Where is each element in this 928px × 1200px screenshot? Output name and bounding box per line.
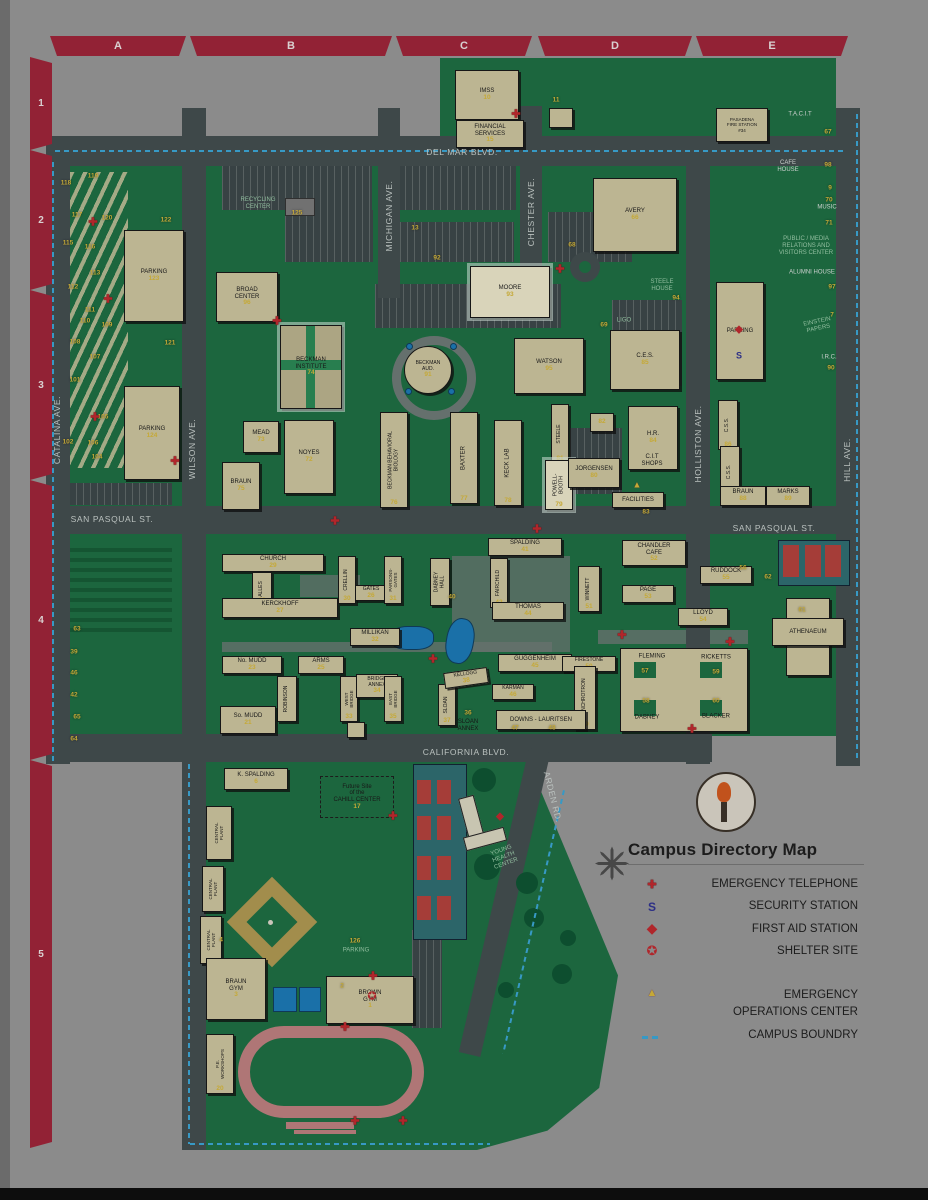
building-number: 96	[243, 300, 250, 307]
building-number: 72	[305, 457, 312, 464]
building-number: 74	[307, 370, 314, 377]
running-track	[238, 1026, 424, 1118]
building-number-92: 92	[433, 255, 440, 262]
legend-item: CAMPUS BOUNDRY	[642, 1026, 858, 1044]
legend-item: ✪ SHELTER SITE	[642, 943, 858, 960]
building-millikan: MILLIKAN32	[350, 628, 400, 646]
legend-item: ▲ EMERGENCY OPERATIONS CENTER	[642, 987, 858, 1020]
label-ricketts: RICKETTS	[701, 654, 731, 661]
building-name: DABNEY HALL	[434, 572, 445, 593]
building-number-39: 39	[70, 649, 77, 656]
grid-col-A: A	[50, 36, 186, 56]
building-avery: AVERY66	[593, 178, 677, 252]
building-number: 52	[650, 556, 657, 563]
building-east-bridge: EAST BRIDGE35	[384, 676, 402, 722]
building-number: 1	[368, 1003, 372, 1010]
caltech-seal	[696, 772, 756, 832]
label-c-i-t-shops: C.I.T SHOPS	[641, 454, 662, 468]
street-label-hill-ave: HILL AVE.	[842, 438, 852, 482]
tennis-court	[417, 896, 431, 920]
building-number-116: 116	[85, 244, 96, 251]
parking-lot	[412, 930, 442, 1028]
swimming-pool	[299, 987, 321, 1012]
grid-col-D: D	[538, 36, 692, 56]
label-parking: PARKING	[343, 947, 370, 954]
tree	[516, 872, 538, 894]
emergency-telephone-icon: ✚	[90, 413, 99, 424]
label-recycling-center: RECYCLING CENTER	[240, 197, 275, 211]
emergency-telephone-icon: ✚	[511, 110, 520, 121]
building-church: CHURCH29	[222, 554, 324, 572]
parking-lot	[285, 210, 373, 262]
shelter-site-icon: ✪	[367, 992, 376, 1003]
building-number-94: 94	[672, 295, 679, 302]
building-number: 123	[149, 276, 160, 283]
building-number: 6	[254, 779, 258, 786]
street-label-michigan-ave: MICHIGAN AVE.	[384, 181, 394, 252]
label-t-a-c-i-t: T.A.C.I.T	[788, 111, 811, 118]
legend-title: Campus Directory Map	[628, 840, 817, 860]
legend-item-label: EMERGENCY OPERATIONS CENTER	[662, 987, 858, 1020]
building-number-64: 64	[70, 736, 77, 743]
street-label-wilson-ave: WILSON AVE.	[187, 419, 197, 480]
building-number-59: 59	[712, 669, 719, 676]
roundabout-center	[579, 261, 591, 273]
tree	[498, 982, 514, 998]
building-imss: IMSS10	[455, 70, 519, 120]
building-sloan: SLOAN37	[438, 684, 456, 726]
left-margin-strip	[0, 0, 10, 1200]
tree	[472, 768, 496, 792]
legend-item-label: SECURITY STATION	[662, 898, 858, 915]
building-number: 41	[521, 547, 528, 554]
building-number: 78	[504, 498, 511, 505]
building-braun: BRAUN88	[720, 486, 766, 506]
building-number: 46	[509, 692, 516, 699]
first-aid-station-icon: ◆	[496, 812, 504, 823]
street-label-del-mar-blvd: DEL MAR BLVD.	[426, 147, 498, 157]
building-number: 23	[248, 665, 255, 672]
label-blacker: BLACKER	[702, 713, 730, 720]
street-label-san-pasqual-st: SAN PASQUAL ST.	[733, 523, 816, 533]
tennis-court	[805, 545, 821, 577]
building-name: FAIRCHILD	[496, 570, 502, 596]
building-baxter: BAXTER77	[450, 412, 478, 504]
building-number-60: 60	[712, 698, 719, 705]
legend-item-label: EMERGENCY TELEPHONE	[662, 876, 858, 893]
pitchers-mound	[268, 920, 273, 925]
street-label-san-pasqual-st: SAN PASQUAL ST.	[71, 514, 154, 524]
building-number: 73	[257, 437, 264, 444]
emergency-telephone-icon: ✚	[103, 295, 112, 306]
road-wilson	[182, 136, 206, 1150]
fountain	[450, 343, 457, 350]
building-number-56: 56	[739, 565, 746, 572]
building-number-83: 83	[642, 509, 649, 516]
building-number: 124	[147, 433, 158, 440]
building-number-42: 42	[70, 692, 77, 699]
label-ligo: LIGO	[617, 317, 631, 324]
building-number: 95	[545, 366, 552, 373]
building-name: EAST BRIDGE	[388, 690, 398, 707]
building-name: ROBINSON	[284, 686, 290, 713]
emergency-telephone-icon: ✚	[388, 812, 397, 823]
grid-col-C: C	[396, 36, 532, 56]
legend-item-label: FIRST AID STATION	[662, 921, 858, 938]
tennis-court	[437, 896, 451, 920]
tennis-court	[825, 545, 841, 577]
building-number-7: 7	[830, 312, 834, 319]
grid-row-4: 4	[30, 480, 52, 760]
emergency-telephone-icon: ✚	[725, 638, 734, 649]
building-number-112: 112	[68, 284, 79, 291]
building-central-plant: CENTRAL PLANT	[202, 866, 224, 912]
building-number-11: 11	[553, 97, 560, 104]
tennis-court	[417, 856, 431, 880]
building-number-104: 104	[92, 454, 103, 461]
building-thomas: THOMAS44	[492, 602, 564, 620]
building-pasadena-fire-station-34: PASADENA FIRE STATION #34	[716, 108, 768, 142]
building-watson: WATSON95	[514, 338, 584, 394]
legend-item: ✚ EMERGENCY TELEPHONE	[642, 876, 858, 893]
building-name: BROAD CENTER	[235, 287, 260, 300]
grid-row-3: 3	[30, 290, 52, 480]
building-number: 33	[345, 714, 352, 721]
building-braun-gym: BRAUN GYM3	[206, 958, 266, 1020]
tennis-court	[437, 856, 451, 880]
building-number: 26	[367, 593, 374, 600]
building-number-110: 110	[80, 318, 91, 325]
building-keck-lab: KECK LAB78	[494, 420, 522, 506]
building-name: DOWNS - LAURITSEN	[510, 717, 572, 724]
building-future-site-of-the-cahill-center: Future Site of the CAHILL CENTER17	[320, 776, 394, 818]
emergency-telephone-icon: ✚	[617, 631, 626, 642]
compass-rose-icon	[594, 846, 630, 882]
street-label-holliston-ave: HOLLISTON AVE.	[693, 405, 703, 482]
campus-boundary-line	[856, 114, 858, 758]
building-name: POWELL- BOOTH	[553, 474, 564, 497]
building-name: CENTRAL PLANT	[208, 878, 218, 899]
building-number-67: 67	[824, 129, 831, 136]
fountain	[448, 388, 455, 395]
building-page: PAGE53	[622, 585, 674, 603]
building-winnett: WINNETT51	[578, 566, 600, 612]
building-name: ATHENAEUM	[789, 629, 826, 636]
building-number-57: 57	[641, 668, 648, 675]
building-beckman-aud: BECKMAN AUD.91	[404, 346, 452, 394]
tennis-court	[437, 780, 451, 804]
building-name: KECK LAB	[505, 448, 512, 477]
building-number: 38	[462, 677, 470, 684]
building-number: 25	[317, 665, 324, 672]
road-wilson-stub	[182, 108, 206, 138]
building-name: WINNETT	[586, 578, 592, 601]
building-broad-center: BROAD CENTER96	[216, 272, 278, 322]
first-aid-station-icon: ◆	[642, 920, 662, 937]
campus-boundary-line	[190, 1143, 490, 1145]
building-name: BECKMAN BEHAVIORAL BIOLOGY	[388, 431, 399, 489]
label-alumni-house: ALUMNI HOUSE	[789, 269, 835, 276]
building-number: 80	[590, 473, 597, 480]
building-num-82: 82	[590, 413, 614, 432]
grid-col-E: E	[696, 36, 848, 56]
building-number-63: 63	[73, 626, 80, 633]
emergency-telephone-icon: ✚	[532, 525, 541, 536]
building-facilities: FACILITIES	[612, 492, 664, 508]
building-number-102: 102	[63, 439, 74, 446]
street-label-california-blvd: CALIFORNIA BLVD.	[423, 747, 509, 757]
building-number-113: 113	[90, 270, 101, 277]
building-number-61: 61	[798, 607, 805, 614]
building-spalding: SPALDING41	[488, 538, 562, 556]
building-number-126: 126	[350, 938, 361, 945]
track-strip	[294, 1130, 356, 1134]
emergency-telephone-icon: ✚	[428, 655, 437, 666]
building-name: C.S.S.	[727, 465, 733, 479]
building-name: CENTRAL PLANT	[214, 822, 224, 843]
building-number-46: 46	[70, 670, 77, 677]
building-chandler-cafe: CHANDLER CAFE52	[622, 540, 686, 566]
building-mead: MEAD73	[243, 421, 279, 453]
building-name: ALLES	[259, 581, 265, 597]
building-name: Future Site of the CAHILL CENTER	[333, 784, 380, 804]
building-number-58: 58	[642, 698, 649, 705]
street-label-catalina-ave: CATALINA AVE.	[52, 396, 62, 464]
building-number-40: 40	[448, 594, 455, 601]
street-label-chester-ave: CHESTER AVE.	[526, 178, 536, 246]
building-number-106: 106	[88, 440, 99, 447]
building-number-68: 68	[568, 242, 575, 249]
building-number: 10	[483, 95, 490, 102]
building-number: 93	[506, 292, 513, 299]
building-name: C.S.S.	[725, 418, 731, 432]
building-name: BRAUN GYM	[225, 979, 246, 992]
building-number-115: 115	[63, 240, 74, 247]
building-number-119: 119	[88, 173, 99, 180]
building-number: 20	[216, 1086, 223, 1093]
building-number-118: 118	[61, 180, 72, 187]
building-name: BAXTER	[461, 446, 468, 470]
tennis-court	[417, 780, 431, 804]
building-robinson: ROBINSON	[277, 676, 297, 722]
building-number-13: 13	[411, 225, 418, 232]
building-name: PARSONS- GATES	[388, 568, 398, 591]
building-so-mudd: So. MUDD21	[220, 706, 276, 734]
label-i-r-c: I.R.C.	[821, 354, 836, 361]
building-lloyd: LLOYD54	[678, 608, 728, 626]
tree	[552, 964, 572, 984]
building-number: 54	[699, 617, 706, 624]
fountain	[406, 343, 413, 350]
building-beckman-institute: BECKMAN INSTITUTE74	[280, 325, 342, 409]
label-sloan-annex: SLOAN ANNEX	[458, 719, 479, 733]
legend-item-label: SHELTER SITE	[662, 943, 858, 960]
building-number-65: 65	[73, 714, 80, 721]
swimming-pool	[273, 987, 297, 1012]
building-noyes: NOYES72	[284, 420, 334, 494]
label-fleming: FLEMING	[639, 653, 666, 660]
building-number: 31	[389, 596, 396, 603]
legend-title-rule	[628, 864, 864, 865]
building-name: BECKMAN INSTITUTE	[296, 357, 327, 370]
emergency-telephone-icon: ✚	[272, 317, 281, 328]
building-jorgensen: JORGENSEN80	[568, 458, 620, 488]
legend-item: S SECURITY STATION	[642, 898, 858, 915]
building-name: SLOAN	[444, 697, 450, 714]
label-music: MUSIC	[817, 204, 836, 211]
building-number: 91	[424, 372, 431, 379]
building-athenaeum: ATHENAEUM	[772, 618, 844, 646]
bottom-border-bar	[0, 1188, 928, 1200]
tree	[560, 930, 576, 946]
emergency-operations-center-icon: ▲	[642, 987, 662, 999]
track-strip	[286, 1122, 354, 1129]
building-number-109: 109	[102, 322, 113, 329]
emergency-telephone-icon: ✚	[687, 725, 696, 736]
building-number: 55	[722, 575, 729, 582]
building-gates: GATES26	[355, 585, 387, 601]
building-number: 37	[443, 718, 450, 725]
building-num-	[347, 722, 365, 738]
building-name: PASADENA FIRE STATION #34	[727, 117, 757, 132]
parking-lot	[398, 166, 516, 210]
building-number-108: 108	[70, 339, 81, 346]
building-name: FINANCIAL SERVICES	[474, 124, 505, 137]
building-number-71: 71	[825, 220, 832, 227]
building-number-9: 9	[828, 185, 832, 192]
building-number: 84	[649, 438, 656, 445]
building-name: P.E. WORKSHOPS	[215, 1049, 225, 1079]
building-number: 3	[234, 992, 238, 999]
building-parking: PARKING123	[124, 230, 184, 322]
label-cafe-house: CAFE HOUSE	[777, 160, 798, 174]
emergency-telephone-icon: ✚	[350, 1117, 359, 1128]
building-parsons-gates: PARSONS- GATES31	[384, 556, 402, 604]
tennis-court	[783, 545, 799, 577]
building-downs-lauritsen: DOWNS - LAURITSEN	[496, 710, 586, 730]
building-fairchild: FAIRCHILD42	[490, 558, 508, 608]
security-station-icon: S	[642, 900, 662, 914]
building-arms: ARMS25	[298, 656, 344, 674]
building-name: STEELE	[557, 424, 563, 443]
building-name: CRELLIN	[344, 569, 350, 590]
building-number: 29	[269, 563, 276, 570]
building-number: 15	[486, 137, 493, 144]
building-karman: KARMAN46	[492, 684, 534, 700]
building-dabney-hall: DABNEY HALL	[430, 558, 450, 606]
grid-row-2: 2	[30, 150, 52, 290]
building-k-spalding: K. SPALDING6	[224, 768, 288, 790]
building-number: 17	[353, 804, 360, 811]
building-number-98: 98	[824, 162, 831, 169]
emergency-telephone-icon: ✚	[368, 972, 377, 983]
building-moore: MOORE93	[470, 266, 550, 318]
building-steele: STEELE81	[551, 404, 569, 464]
grid-row-1: 1	[30, 57, 52, 150]
garden-hedges	[64, 544, 172, 632]
building-financial-services: FINANCIAL SERVICES15	[456, 120, 524, 148]
building-crellin: CRELLIN30	[338, 556, 356, 604]
building-number: 79	[555, 502, 562, 509]
building-number-107: 107	[90, 354, 101, 361]
building-number-47: 47	[511, 725, 518, 732]
building-number: 53	[644, 594, 651, 601]
building-c-e-s: C.E.S.85	[610, 330, 680, 390]
building-number: 77	[460, 496, 467, 503]
building-no-mudd: No. MUDD23	[222, 656, 282, 674]
building-number-69: 69	[600, 322, 607, 329]
building-guggenheim: GUGGENHEIM45	[498, 654, 572, 672]
building-number-122: 122	[161, 217, 172, 224]
building-number-62: 62	[764, 574, 771, 581]
emergency-telephone-icon: ✚	[330, 517, 339, 528]
emergency-telephone-icon: ✚	[398, 1117, 407, 1128]
building-number: 88	[739, 496, 746, 503]
building-number: 32	[371, 637, 378, 644]
building-number-90: 90	[827, 365, 834, 372]
building-number-101: 101	[70, 377, 81, 384]
label-dabney: DABNEY	[635, 714, 660, 721]
emergency-operations-center-icon: ▲	[633, 481, 642, 490]
legend-item: ◆ FIRST AID STATION	[642, 920, 858, 937]
building-number: 89	[784, 496, 791, 503]
tennis-court	[437, 816, 451, 840]
building-kerckhoff: KERCKHOFF27	[222, 598, 338, 618]
building-number: 27	[276, 608, 283, 615]
building-number: 44	[524, 611, 531, 618]
building-number: 35	[389, 714, 396, 721]
emergency-telephone-icon: ✚	[555, 265, 564, 276]
building-number: 45	[531, 663, 538, 670]
legend-item-label: CAMPUS BOUNDRY	[662, 1027, 858, 1044]
emergency-telephone-icon: ✚	[170, 457, 179, 468]
building-beckman-behavioral-biology: BECKMAN BEHAVIORAL BIOLOGY76	[380, 412, 408, 508]
building-number-97: 97	[828, 284, 835, 291]
building-number-4: 4	[219, 937, 223, 944]
building-number: 82	[598, 419, 605, 426]
fountain	[405, 388, 412, 395]
campus-directory-map: Campus Directory Map ✚ EMERGENCY TELEPHO…	[0, 0, 928, 1200]
building-number: 34	[373, 688, 380, 695]
building-number-121: 121	[165, 340, 176, 347]
building-marks: MARKS89	[766, 486, 810, 506]
building-number-120: 120	[102, 215, 113, 222]
building-number-117: 117	[72, 212, 83, 219]
building-number: 30	[343, 596, 350, 603]
building-central-plant: CENTRAL PLANT	[206, 806, 232, 860]
building-num-	[549, 108, 573, 128]
emergency-telephone-icon: ✚	[88, 218, 97, 229]
emergency-telephone-icon: ✚	[642, 878, 662, 891]
parking-lot	[62, 483, 172, 505]
building-number-48: 48	[548, 725, 555, 732]
building-number-70: 70	[825, 197, 832, 204]
grid-row-5: 5	[30, 760, 52, 1148]
building-name: FACILITIES	[622, 497, 654, 504]
building-number: 51	[585, 604, 592, 611]
building-number-36: 36	[464, 710, 471, 717]
label-steele-house: STEELE HOUSE	[650, 279, 673, 293]
first-aid-station-icon: ◆	[735, 325, 743, 336]
building-number-2: 2	[340, 983, 344, 990]
campus-boundary-line	[188, 764, 190, 1144]
label-public-media-relations-and-visitors-center: PUBLIC / MEDIA RELATIONS AND VISITORS CE…	[779, 236, 833, 258]
building-number: 85	[641, 360, 648, 367]
security-station-icon: S	[736, 352, 742, 361]
building-number: 75	[237, 486, 244, 493]
emergency-telephone-icon: ✚	[340, 1023, 349, 1034]
shelter-site-icon: ✪	[642, 943, 662, 959]
